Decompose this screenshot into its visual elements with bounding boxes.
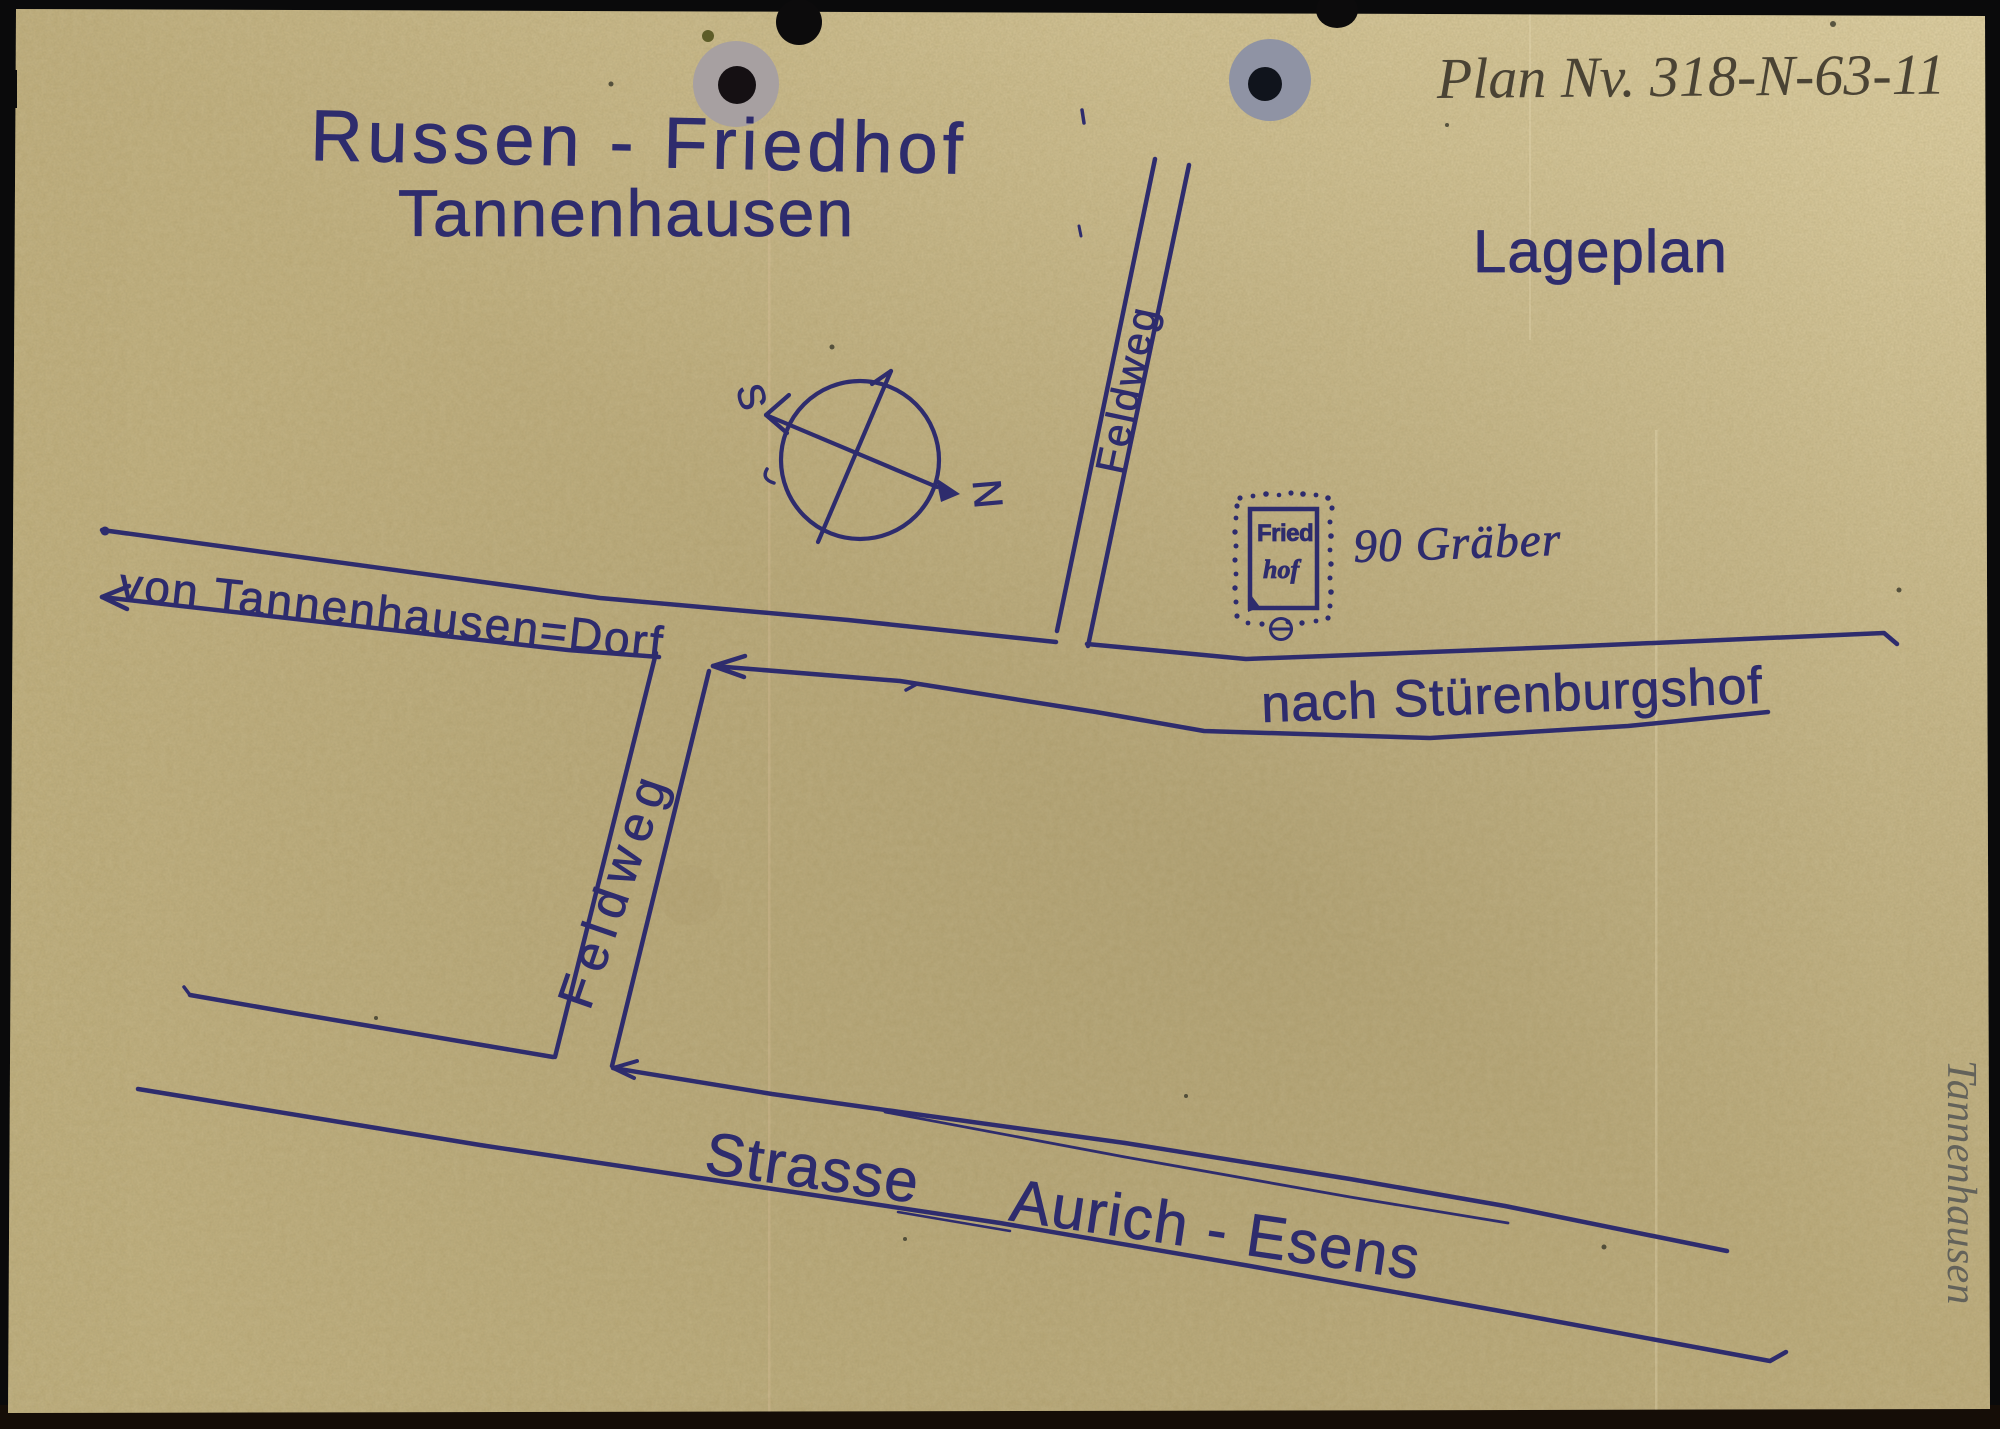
svg-text:hof: hof (1263, 555, 1301, 584)
svg-text:N: N (964, 478, 1010, 511)
svg-text:Tannenhausen: Tannenhausen (398, 176, 855, 250)
svg-text:Fried: Fried (1257, 520, 1313, 547)
svg-text:Plan Nv. 318-N-63-11: Plan Nv. 318-N-63-11 (1436, 42, 1946, 111)
svg-text:Tannenhausen: Tannenhausen (1938, 1060, 1984, 1305)
svg-text:90 Gräber: 90 Gräber (1353, 514, 1563, 573)
svg-text:Lageplan: Lageplan (1473, 218, 1728, 285)
